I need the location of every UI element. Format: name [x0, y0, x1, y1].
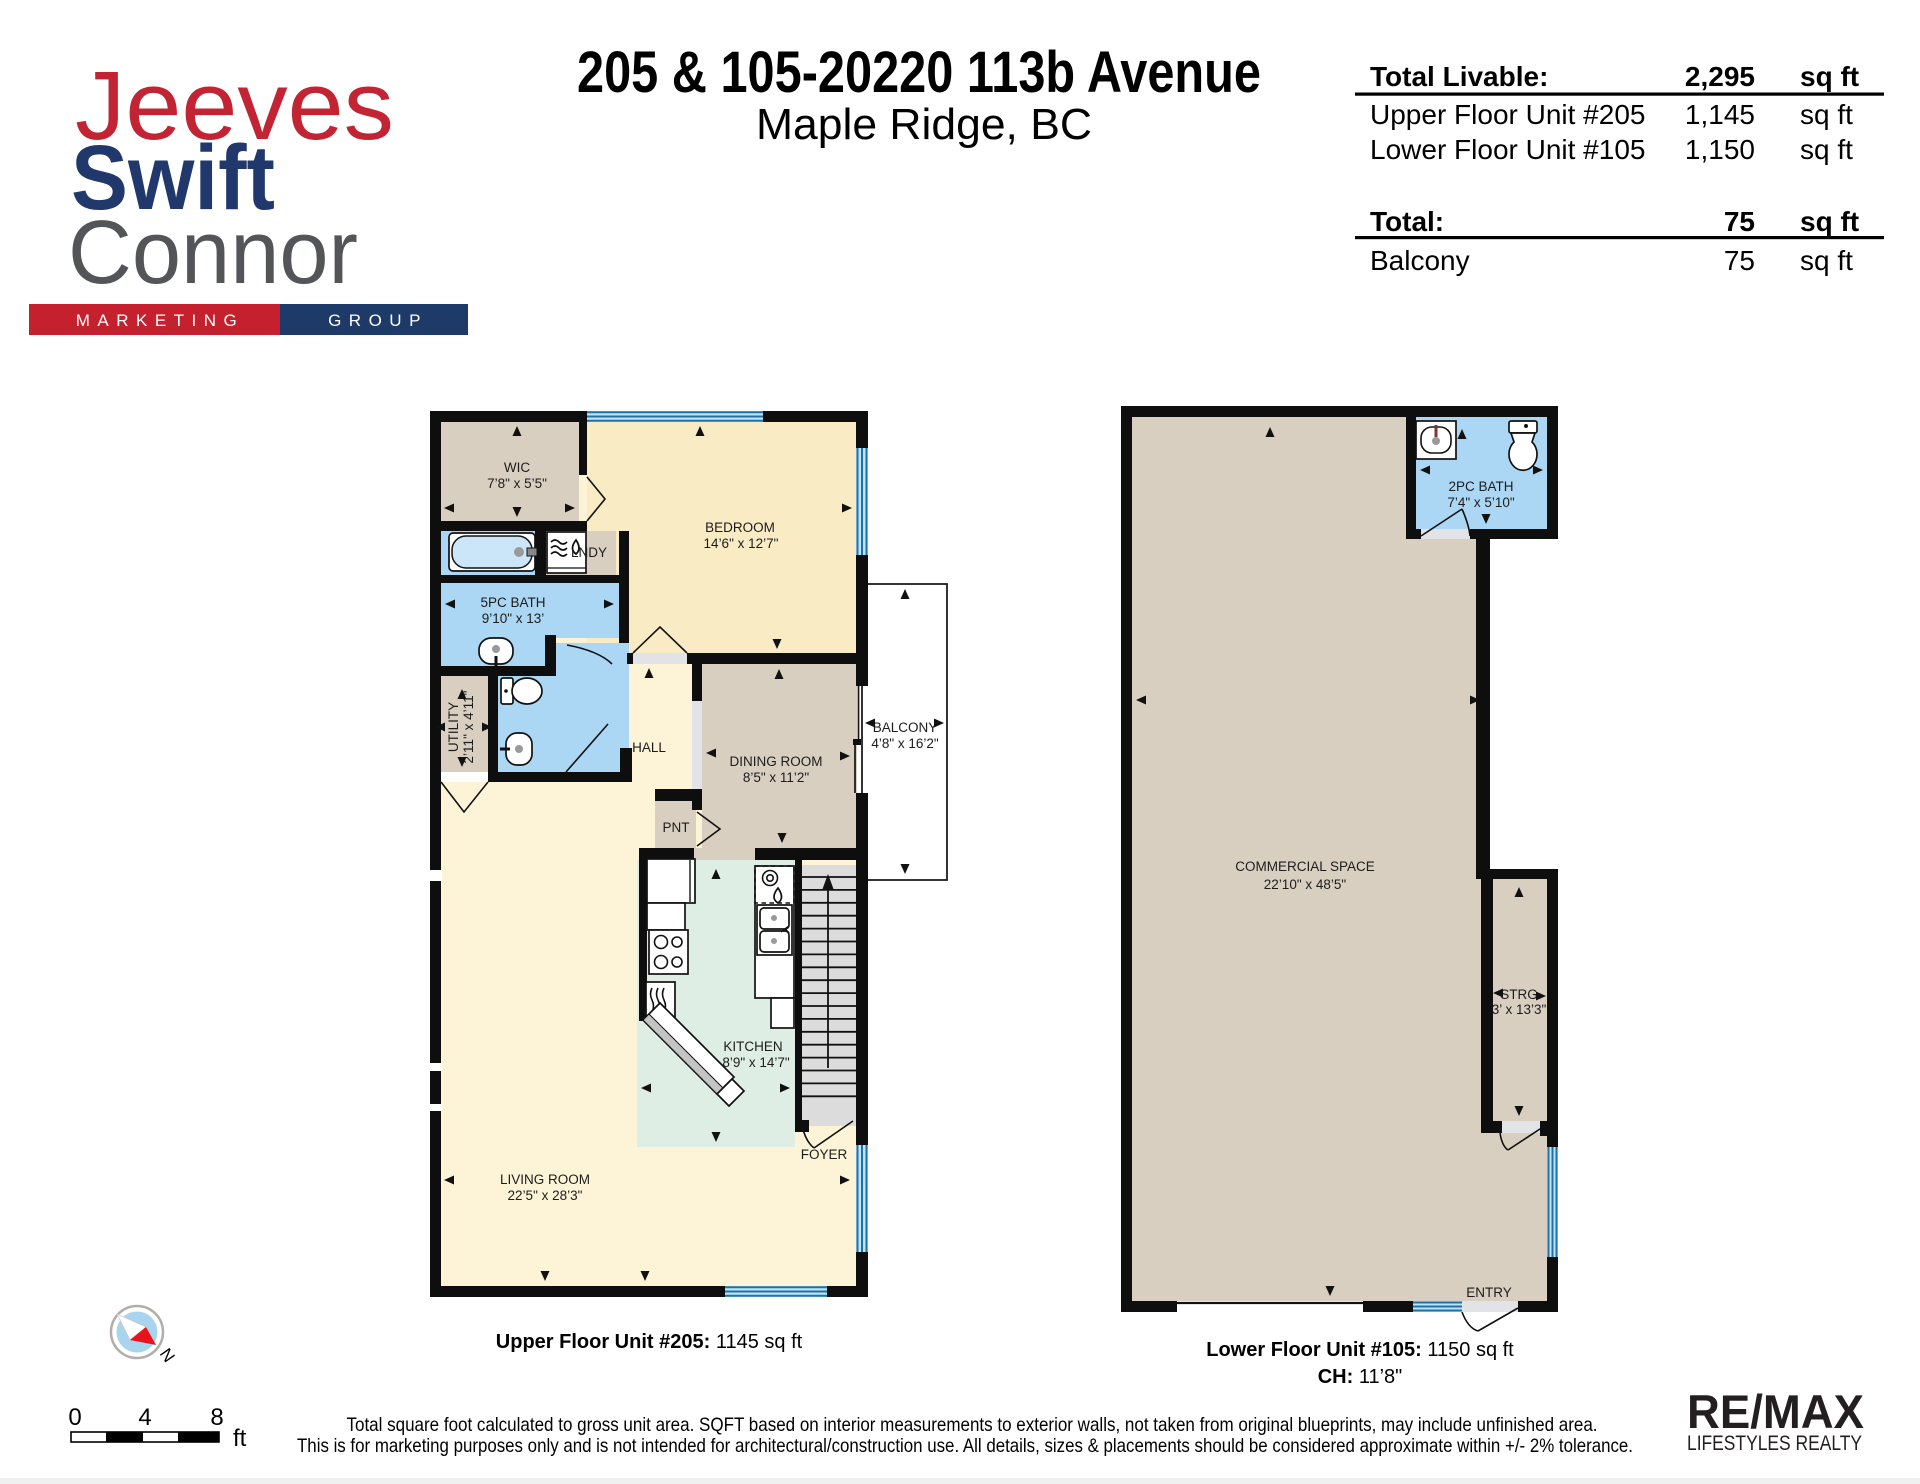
svg-text:22’5" x 28’3": 22’5" x 28’3"	[508, 1188, 583, 1203]
svg-text:CH: 11’8": CH: 11’8"	[1318, 1366, 1403, 1388]
svg-text:7’4" x 5’10": 7’4" x 5’10"	[1447, 495, 1515, 510]
svg-text:22’10" x 48’5": 22’10" x 48’5"	[1264, 877, 1347, 892]
svg-text:1,150: 1,150	[1685, 134, 1755, 165]
svg-text:sq ft: sq ft	[1800, 245, 1853, 276]
svg-text:0: 0	[68, 1404, 81, 1431]
svg-text:5PC BATH: 5PC BATH	[480, 595, 545, 610]
svg-text:BALCONY: BALCONY	[873, 720, 938, 735]
svg-text:sq ft: sq ft	[1800, 206, 1859, 237]
svg-text:2’11" x 4’11": 2’11" x 4’11"	[461, 690, 476, 763]
svg-text:BEDROOM: BEDROOM	[705, 520, 775, 535]
svg-text:4: 4	[138, 1404, 151, 1431]
svg-text:DINING ROOM: DINING ROOM	[730, 754, 823, 769]
svg-text:Lower Floor Unit #105: Lower Floor Unit #105	[1370, 134, 1645, 165]
svg-text:Total Livable:: Total Livable:	[1370, 61, 1548, 92]
svg-text:8’9" x 14’7": 8’9" x 14’7"	[722, 1055, 790, 1070]
svg-text:COMMERCIAL SPACE: COMMERCIAL SPACE	[1235, 859, 1375, 874]
svg-text:75: 75	[1724, 245, 1755, 276]
svg-text:Balcony: Balcony	[1370, 245, 1470, 276]
svg-text:N: N	[156, 1345, 179, 1366]
svg-text:MARKETING: MARKETING	[76, 311, 245, 330]
svg-text:Upper Floor Unit #205: 1145 sq: Upper Floor Unit #205: 1145 sq ft	[496, 1331, 803, 1353]
svg-text:UTILITY: UTILITY	[446, 702, 461, 752]
svg-text:Lower Floor Unit #105: 1150 sq: Lower Floor Unit #105: 1150 sq ft	[1206, 1339, 1514, 1361]
svg-text:Total:: Total:	[1370, 206, 1444, 237]
svg-text:WIC: WIC	[504, 460, 530, 475]
svg-text:205 & 105-20220 113b Avenue: 205 & 105-20220 113b Avenue	[577, 40, 1261, 105]
svg-text:KITCHEN: KITCHEN	[723, 1039, 782, 1054]
svg-text:14’6" x 12’7": 14’6" x 12’7"	[704, 536, 779, 551]
svg-text:sq ft: sq ft	[1800, 61, 1859, 92]
svg-text:GROUP: GROUP	[328, 311, 428, 330]
svg-text:ft: ft	[233, 1425, 247, 1452]
svg-text:PNT: PNT	[663, 820, 690, 835]
svg-text:4’8" x 16’2": 4’8" x 16’2"	[871, 736, 939, 751]
svg-text:STRG: STRG	[1500, 987, 1538, 1002]
svg-text:Maple Ridge, BC: Maple Ridge, BC	[756, 100, 1092, 149]
svg-text:RE/MAX: RE/MAX	[1687, 1385, 1864, 1438]
svg-text:Total square foot calculated t: Total square foot calculated to gross un…	[347, 1414, 1598, 1436]
svg-text:9’10" x 13’: 9’10" x 13’	[482, 611, 545, 626]
svg-text:7’8" x 5’5": 7’8" x 5’5"	[487, 476, 547, 491]
svg-text:LIFESTYLES REALTY: LIFESTYLES REALTY	[1687, 1432, 1862, 1455]
svg-text:Connor: Connor	[68, 203, 358, 303]
svg-text:1,145: 1,145	[1685, 99, 1755, 130]
svg-text:2PC BATH: 2PC BATH	[1448, 479, 1513, 494]
svg-text:Upper Floor Unit #205: Upper Floor Unit #205	[1370, 99, 1645, 130]
svg-text:75: 75	[1724, 206, 1755, 237]
svg-text:LIVING ROOM: LIVING ROOM	[500, 1172, 590, 1187]
svg-text:sq ft: sq ft	[1800, 134, 1853, 165]
svg-text:ENTRY: ENTRY	[1466, 1285, 1512, 1300]
svg-text:8: 8	[210, 1404, 223, 1431]
svg-text:HALL: HALL	[632, 740, 666, 755]
svg-text:8’5" x 11’2": 8’5" x 11’2"	[743, 770, 810, 785]
svg-text:This is for marketing purposes: This is for marketing purposes only and …	[297, 1435, 1633, 1457]
svg-text:3’ x 13’3": 3’ x 13’3"	[1492, 1002, 1547, 1017]
svg-text:2,295: 2,295	[1685, 61, 1755, 92]
svg-text:FOYER: FOYER	[801, 1147, 848, 1162]
svg-text:LNDY: LNDY	[571, 545, 607, 560]
svg-text:sq ft: sq ft	[1800, 99, 1853, 130]
